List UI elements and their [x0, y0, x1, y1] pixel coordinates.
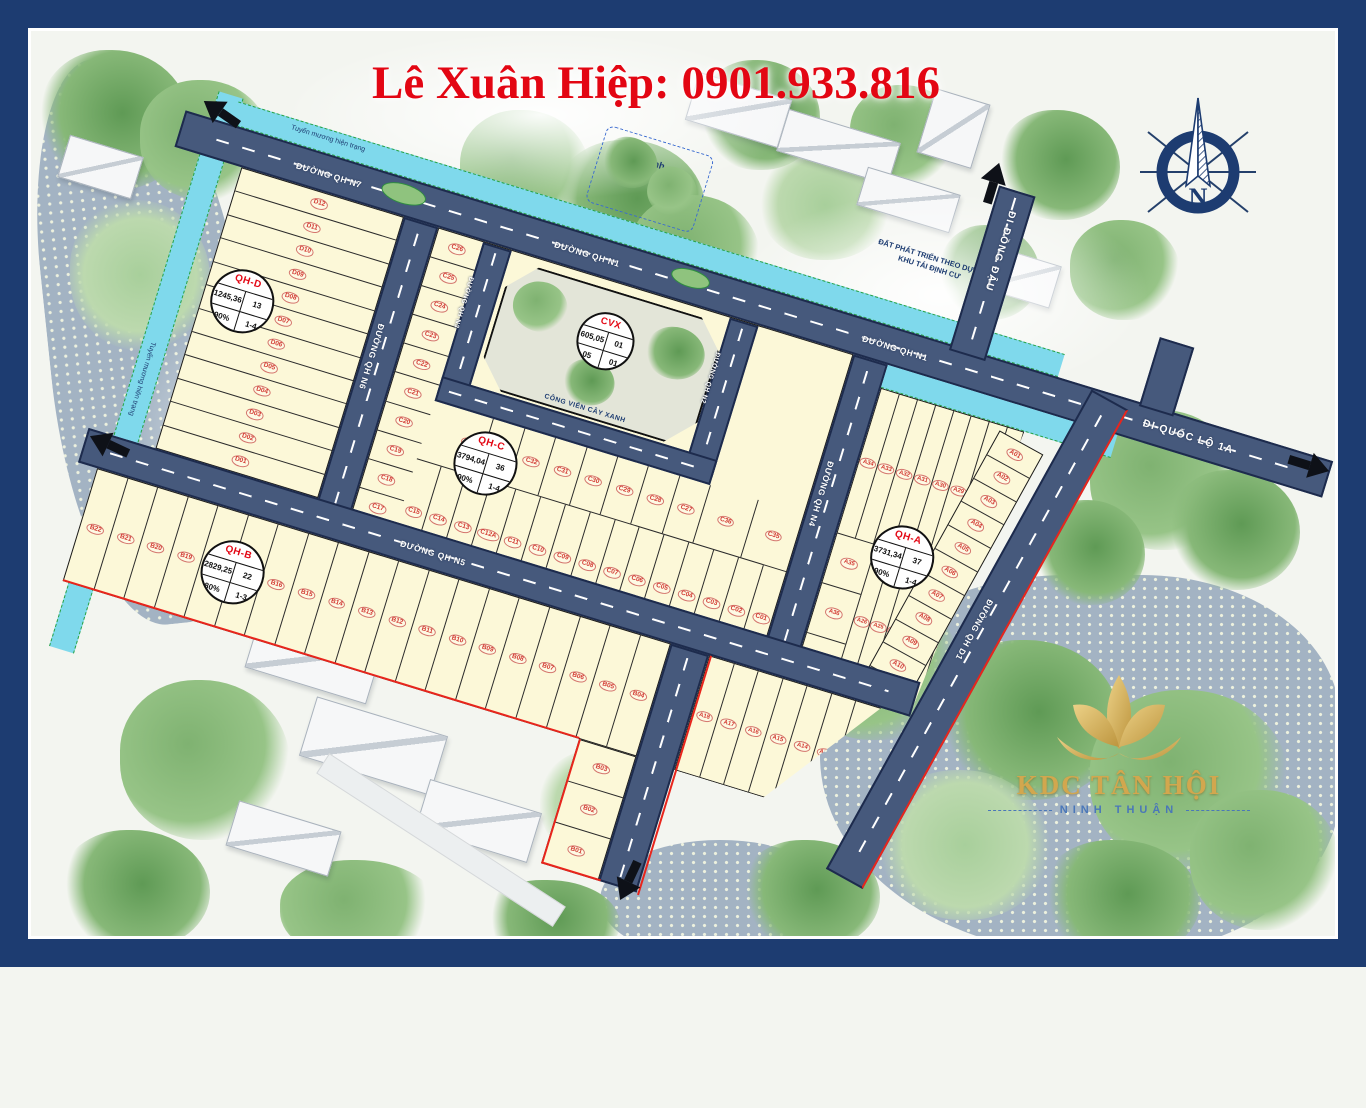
arrow-shaft [983, 181, 998, 205]
logo-title: KDC TÂN HỘI [988, 770, 1250, 801]
road-n1-label: ĐƯỜNG QH N1 [553, 239, 621, 268]
lot-label: A10 [887, 657, 908, 675]
lot-label: B03 [591, 761, 611, 776]
lot-label: B10 [447, 632, 467, 647]
lot-label: C24 [429, 299, 449, 314]
tree-blob [60, 830, 210, 950]
lot-label: C04 [676, 588, 696, 603]
lot-label: B11 [417, 623, 437, 638]
lot-label: D06 [266, 337, 286, 352]
lot-label: A18 [695, 709, 714, 724]
lot-label: C22 [412, 357, 432, 372]
lot-label: D03 [245, 407, 265, 422]
lot-label: C02 [726, 603, 746, 618]
lot-label: C05 [652, 580, 672, 595]
lot-label: C20 [394, 414, 414, 429]
lot-label: D09 [287, 267, 307, 282]
compass-rose-icon: N [1138, 92, 1258, 247]
road-d1-label: ĐƯỜNG QH D1 [954, 598, 996, 662]
lot-label: A12 [841, 754, 860, 769]
exit-e-label: ĐI QUỐC LỘ 1A [1141, 417, 1235, 456]
logo-subtitle: NINH THUẬN [988, 804, 1250, 816]
lot-label: B04 [628, 688, 648, 703]
lot-label: C25 [438, 270, 458, 285]
lot-label: C07 [602, 565, 622, 580]
lot-label: C08 [577, 558, 597, 573]
lot-label: C13 [453, 520, 473, 535]
lot-label: A08 [913, 610, 934, 628]
lot-label: C31 [552, 464, 572, 479]
lot-label: A09 [900, 633, 921, 651]
lot-label: B05 [598, 678, 618, 693]
lot-label: B12 [387, 614, 407, 629]
project-logo: KDC TÂN HỘI NINH THUẬN [988, 668, 1250, 816]
lot-label: B07 [538, 660, 558, 675]
lot-label: C36 [715, 514, 735, 529]
lot-label: D02 [237, 430, 257, 445]
lot-label: B16 [266, 577, 286, 592]
lot-label: C11 [503, 535, 523, 550]
lot-label: C35 [763, 528, 783, 543]
lot-label: A02 [991, 469, 1012, 487]
lot-label: A01 [1004, 446, 1025, 464]
compass-north-letter: N [1189, 183, 1208, 212]
lot-label: A07 [926, 586, 947, 604]
lot-label: C01 [751, 611, 771, 626]
tree-blob [507, 275, 574, 339]
lot-label: C30 [583, 473, 603, 488]
lot-label: B14 [327, 595, 347, 610]
lot-label: C10 [527, 542, 547, 557]
lot-label: D05 [259, 360, 279, 375]
lot-label: C26 [447, 242, 467, 257]
lot-label: D01 [230, 453, 250, 468]
lot-label: B08 [507, 651, 527, 666]
lot-label: D08 [280, 290, 300, 305]
lot-label: C03 [701, 595, 721, 610]
arrow-shaft [106, 440, 130, 457]
lot-label: C14 [428, 512, 448, 527]
lot-label: B06 [568, 669, 588, 684]
lot-label: C19 [385, 443, 405, 458]
road-n7-label: ĐƯỜNG QH N7 [295, 160, 363, 189]
lot-label: C06 [627, 573, 647, 588]
tree-blob [1170, 470, 1300, 590]
lot-label: B15 [296, 586, 316, 601]
lot-label: A35 [839, 556, 858, 571]
lot-label: B01 [566, 843, 586, 858]
lot-label: C18 [376, 472, 396, 487]
lot-label: B21 [115, 531, 135, 546]
lot-label: D10 [295, 243, 315, 258]
lot-label: D04 [252, 383, 272, 398]
lot-label: C12A [476, 527, 501, 544]
lot-label: A12A [815, 746, 838, 762]
lot-label: C27 [676, 502, 696, 517]
lot-label: B22 [85, 522, 105, 537]
lot-label: D07 [273, 313, 293, 328]
lot-label: C32 [521, 454, 541, 469]
lot-label: B13 [357, 605, 377, 620]
road-n1-label-2: ĐƯỜNG QH N1 [861, 334, 929, 363]
lot-label: C09 [552, 550, 572, 565]
lotus-icon [1054, 668, 1184, 768]
lot-label: C21 [403, 386, 423, 401]
lot-label: D12 [309, 197, 329, 212]
arrow-shaft [1288, 455, 1312, 470]
lot-label: A17 [719, 717, 738, 732]
lot-label: A03 [978, 493, 999, 511]
lot-label: A16 [744, 724, 763, 739]
lot-label: A36 [824, 606, 843, 621]
contact-title: Lê Xuân Hiệp: 0901.933.816 [372, 56, 940, 110]
lot-label: C23 [420, 328, 440, 343]
tree-blob [639, 319, 712, 386]
arrow-shaft [218, 109, 241, 129]
lot-label: D11 [302, 220, 322, 235]
lot-label: B09 [477, 642, 497, 657]
lot-label: A14 [793, 739, 812, 754]
lot-label: C28 [645, 492, 665, 507]
lot-label: A15 [768, 731, 787, 746]
lot-label: C29 [614, 483, 634, 498]
logo-province: NINH THUẬN [1060, 804, 1178, 816]
lot-label: A06 [939, 563, 960, 581]
lot-label: B02 [579, 802, 599, 817]
lot-label: A04 [965, 516, 986, 534]
arrow-head-icon [1306, 453, 1333, 484]
lot-label: C15 [403, 504, 423, 519]
lot-label: B20 [146, 540, 166, 555]
lot-label: A05 [952, 540, 973, 558]
lot-label: B19 [176, 549, 196, 564]
